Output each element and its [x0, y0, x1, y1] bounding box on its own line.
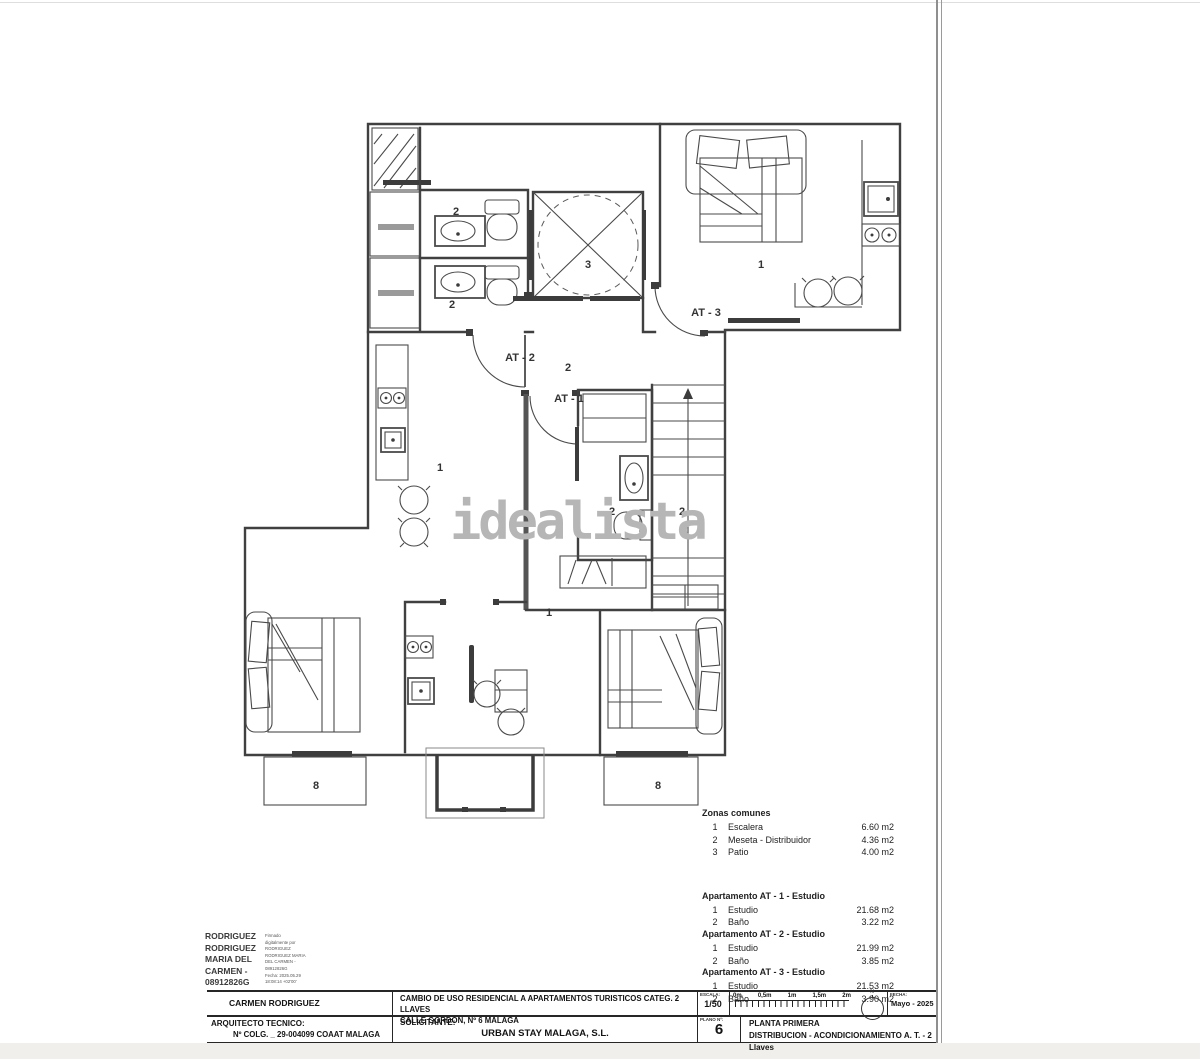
scale-tick: 0,5m: [758, 993, 772, 999]
plan-label: 2: [453, 206, 459, 218]
plan-label: 1: [546, 607, 552, 619]
sheet-title-line1: PLANTA PRIMERA: [749, 1018, 936, 1030]
legend-row: 2Baño3.85 m2: [702, 955, 894, 968]
bottom-left-bed: [246, 612, 360, 732]
project-line1: CAMBIO DE USO RESIDENCIAL A APARTAMENTOS…: [400, 993, 697, 1015]
area-legend: Zonas comunes 1Escalera6.60 m22Meseta - …: [702, 808, 894, 1005]
sheet-title-cell: PLANTA PRIMERA DISTRIBUCION - ACONDICION…: [741, 1016, 936, 1042]
architect-cell: ARQUITECTO TECNICO: Nº COLG. _ 29-004099…: [207, 1016, 392, 1042]
bottom-right-bed: [608, 618, 722, 734]
watermark: idealista: [450, 496, 705, 548]
legend-row: 1Estudio21.99 m2: [702, 942, 894, 955]
legend-row: 2Meseta - Distribuidor4.36 m2: [702, 834, 894, 847]
legend-row: 1Estudio21.68 m2: [702, 904, 894, 917]
legend-title-at2: Apartamento AT - 2 - Estudio: [702, 929, 894, 939]
legend-title-at3: Apartamento AT - 3 - Estudio: [702, 967, 894, 977]
project-description: CAMBIO DE USO RESIDENCIAL A APARTAMENTOS…: [393, 991, 697, 1015]
north-indicator: N: [857, 990, 887, 1015]
legend-rows-at2: 1Estudio21.99 m22Baño3.85 m2: [702, 942, 894, 967]
signature-details: Firmadodigitalmente porRODRIGUEZRODRIGUE…: [265, 931, 306, 989]
applicant-cell: SOLICITANTE: URBAN STAY MALAGA, S.L.: [393, 1016, 697, 1042]
legend-apartment-1: Apartamento AT - 1 - Estudio 1Estudio21.…: [702, 891, 894, 929]
drawing-sheet: 2231AT - 3AT - 22AT - 1122188 idealista …: [0, 0, 1200, 1059]
scale-ruler: [735, 1000, 849, 1007]
legend-row: 2Baño3.22 m2: [702, 916, 894, 929]
plan-label: 8: [313, 780, 319, 792]
titleblock-divider: [729, 990, 730, 1015]
signature-name: RODRIGUEZRODRIGUEZMARIA DELCARMEN -08912…: [205, 931, 261, 989]
architect-label: ARQUITECTO TECNICO:: [211, 1018, 392, 1029]
plan-label: 2: [449, 299, 455, 311]
legend-row: 1Escalera6.60 m2: [702, 821, 894, 834]
plan-label: 3: [585, 259, 591, 271]
patio: [513, 192, 646, 330]
plan-label: 8: [655, 780, 661, 792]
legend-apartment-2: Apartamento AT - 2 - Estudio 1Estudio21.…: [702, 929, 894, 967]
plan-label: AT - 2: [505, 352, 535, 364]
at2-kitchenette: [376, 345, 430, 547]
scale-tick-labels: 0m0,5m1m1,5m2m: [733, 993, 851, 999]
author-name: CARMEN RODRIGUEZ: [207, 991, 392, 1015]
date-value: Mayo - 2025: [888, 997, 936, 1008]
scale-bar: 0m0,5m1m1,5m2m: [731, 992, 853, 1014]
stair-shaft-hatch: [372, 128, 431, 190]
date-cell: FECHA: Mayo - 2025: [888, 991, 936, 1015]
bottom-middle-room: [405, 599, 527, 752]
shared-bathrooms: [420, 190, 532, 305]
legend-rows-zonas: 1Escalera6.60 m22Meseta - Distribuidor4.…: [702, 821, 894, 859]
legend-title-zonas: Zonas comunes: [702, 808, 894, 818]
scale-cell: ESCALA: 1/50: [698, 991, 728, 1015]
plan-label: AT - 1: [554, 393, 584, 405]
scale-tick: 2m: [842, 993, 851, 999]
sheet-title-line2: DISTRIBUCION - ACONDICIONAMIENTO A. T. -…: [749, 1030, 936, 1054]
applicant-value: URBAN STAY MALAGA, S.L.: [393, 1028, 697, 1039]
plan-number-cell: PLANO Nº: 6: [698, 1016, 740, 1042]
balconies: [264, 748, 698, 818]
plan-label: 1: [437, 462, 443, 474]
legend-rows-at1: 1Estudio21.68 m22Baño3.22 m2: [702, 904, 894, 929]
plan-label: 1: [758, 259, 764, 271]
legend-row: 3Patio4.00 m2: [702, 846, 894, 859]
scale-tick: 1,5m: [812, 993, 826, 999]
plan-number-value: 6: [698, 1021, 740, 1038]
scale-label: ESCALA:: [698, 991, 728, 997]
scale-tick: 0m: [733, 993, 742, 999]
applicant-label: SOLICITANTE:: [393, 1016, 697, 1027]
plan-label: 2: [565, 362, 571, 374]
scale-tick: 1m: [788, 993, 797, 999]
title-block: CARMEN RODRIGUEZ CAMBIO DE USO RESIDENCI…: [207, 990, 936, 1043]
at3-furniture: [686, 130, 900, 323]
plan-label: AT - 3: [691, 307, 721, 319]
signature-stamp: RODRIGUEZRODRIGUEZMARIA DELCARMEN -08912…: [205, 931, 306, 989]
north-label: N: [857, 990, 887, 995]
scale-value: 1/50: [698, 999, 728, 1009]
architect-value: Nº COLG. _ 29-004099 COAAT MALAGA: [211, 1029, 392, 1040]
legend-title-at1: Apartamento AT - 1 - Estudio: [702, 891, 894, 901]
